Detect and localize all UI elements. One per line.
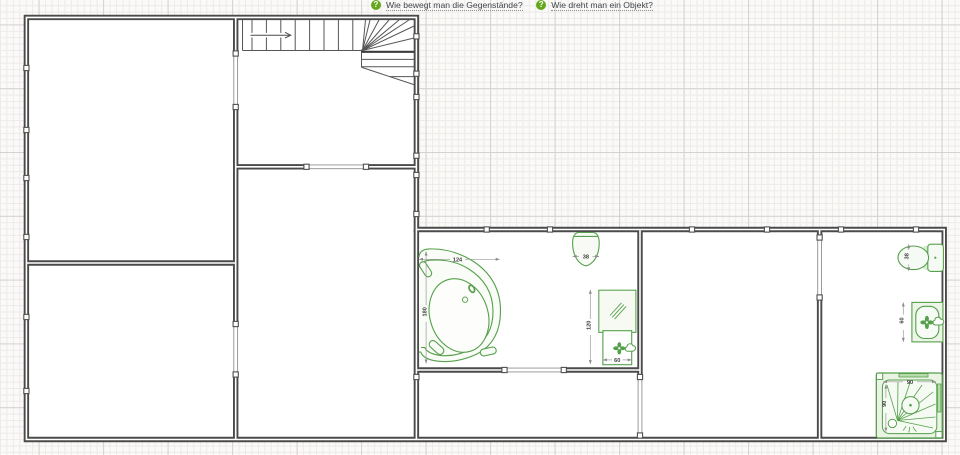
svg-text:90: 90 [882, 401, 888, 407]
svg-text:38: 38 [905, 253, 911, 259]
svg-text:90: 90 [907, 380, 913, 386]
svg-text:60: 60 [899, 317, 905, 323]
svg-text:120: 120 [586, 321, 592, 330]
svg-text:38: 38 [583, 255, 589, 261]
svg-text:180: 180 [422, 307, 428, 316]
svg-text:124: 124 [453, 257, 463, 263]
svg-text:60: 60 [614, 358, 620, 364]
